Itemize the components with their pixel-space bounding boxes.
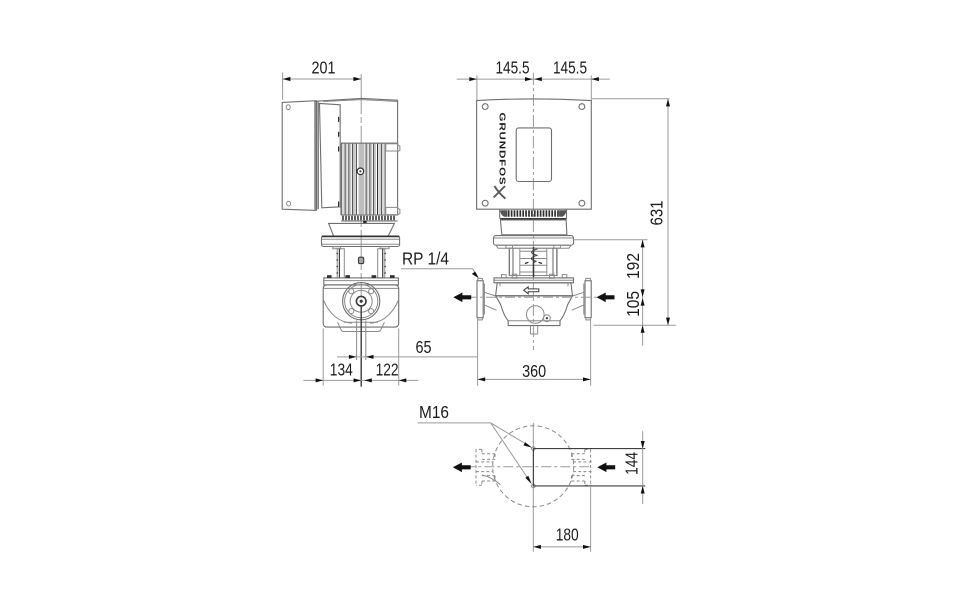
- svg-text:GRUNDFOS: GRUNDFOS: [497, 113, 507, 186]
- svg-text:122: 122: [376, 360, 399, 380]
- svg-text:RP 1/4: RP 1/4: [402, 249, 449, 269]
- svg-text:180: 180: [556, 525, 579, 545]
- svg-text:144: 144: [622, 452, 642, 475]
- svg-text:192: 192: [623, 253, 643, 279]
- svg-text:134: 134: [330, 360, 353, 380]
- svg-text:65: 65: [416, 337, 432, 357]
- svg-text:201: 201: [312, 58, 336, 78]
- svg-text:360: 360: [522, 361, 546, 381]
- svg-text:105: 105: [623, 291, 643, 317]
- svg-text:145.5: 145.5: [496, 58, 530, 78]
- svg-text:631: 631: [647, 201, 667, 226]
- svg-text:145.5: 145.5: [553, 58, 587, 78]
- svg-text:M16: M16: [419, 402, 449, 422]
